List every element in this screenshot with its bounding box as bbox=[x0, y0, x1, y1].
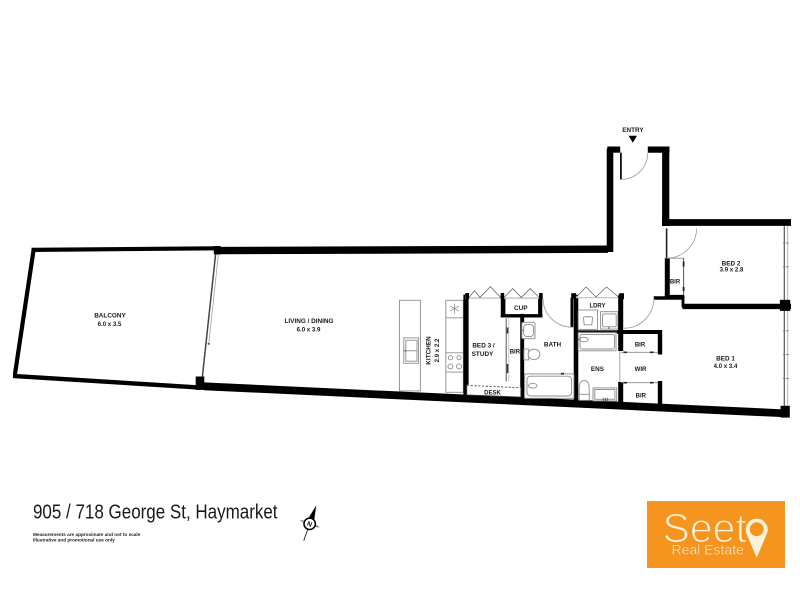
svg-text:6.0 x 3.9: 6.0 x 3.9 bbox=[297, 326, 321, 333]
svg-text:Illustrative and promotional u: Illustrative and promotional use only bbox=[33, 538, 115, 543]
svg-text:BATH: BATH bbox=[544, 341, 562, 348]
svg-text:STUDY: STUDY bbox=[472, 351, 494, 358]
svg-text:BIR: BIR bbox=[510, 350, 521, 356]
svg-text:BED 3 /: BED 3 / bbox=[472, 343, 495, 350]
svg-text:LDRY: LDRY bbox=[589, 303, 605, 309]
svg-text:Measurements are approximate a: Measurements are approximate and not to … bbox=[33, 532, 141, 537]
svg-text:905 / 718 George St, Haymarket: 905 / 718 George St, Haymarket bbox=[33, 500, 278, 523]
svg-text:BIR: BIR bbox=[635, 343, 646, 349]
svg-text:DESK: DESK bbox=[484, 391, 501, 397]
svg-text:ENS: ENS bbox=[591, 366, 605, 373]
svg-text:ENTRY: ENTRY bbox=[622, 127, 644, 134]
svg-text:6.0 x 3.5: 6.0 x 3.5 bbox=[98, 321, 122, 328]
svg-text:4.0 x 3.4: 4.0 x 3.4 bbox=[714, 363, 738, 370]
svg-text:3.9 x 2.8: 3.9 x 2.8 bbox=[720, 267, 744, 274]
svg-text:BALCONY: BALCONY bbox=[94, 313, 126, 320]
svg-text:CUP: CUP bbox=[514, 305, 528, 312]
svg-text:Real Estate: Real Estate bbox=[672, 541, 745, 557]
svg-text:LIVING / DINING: LIVING / DINING bbox=[285, 318, 334, 325]
svg-text:KITCHEN: KITCHEN bbox=[426, 336, 433, 365]
svg-text:WIR: WIR bbox=[635, 367, 647, 373]
svg-text:BED 1: BED 1 bbox=[716, 356, 735, 363]
svg-text:BIR: BIR bbox=[670, 280, 681, 286]
svg-text:BIR: BIR bbox=[636, 394, 647, 400]
svg-text:2.9 x 2.2: 2.9 x 2.2 bbox=[434, 338, 441, 362]
